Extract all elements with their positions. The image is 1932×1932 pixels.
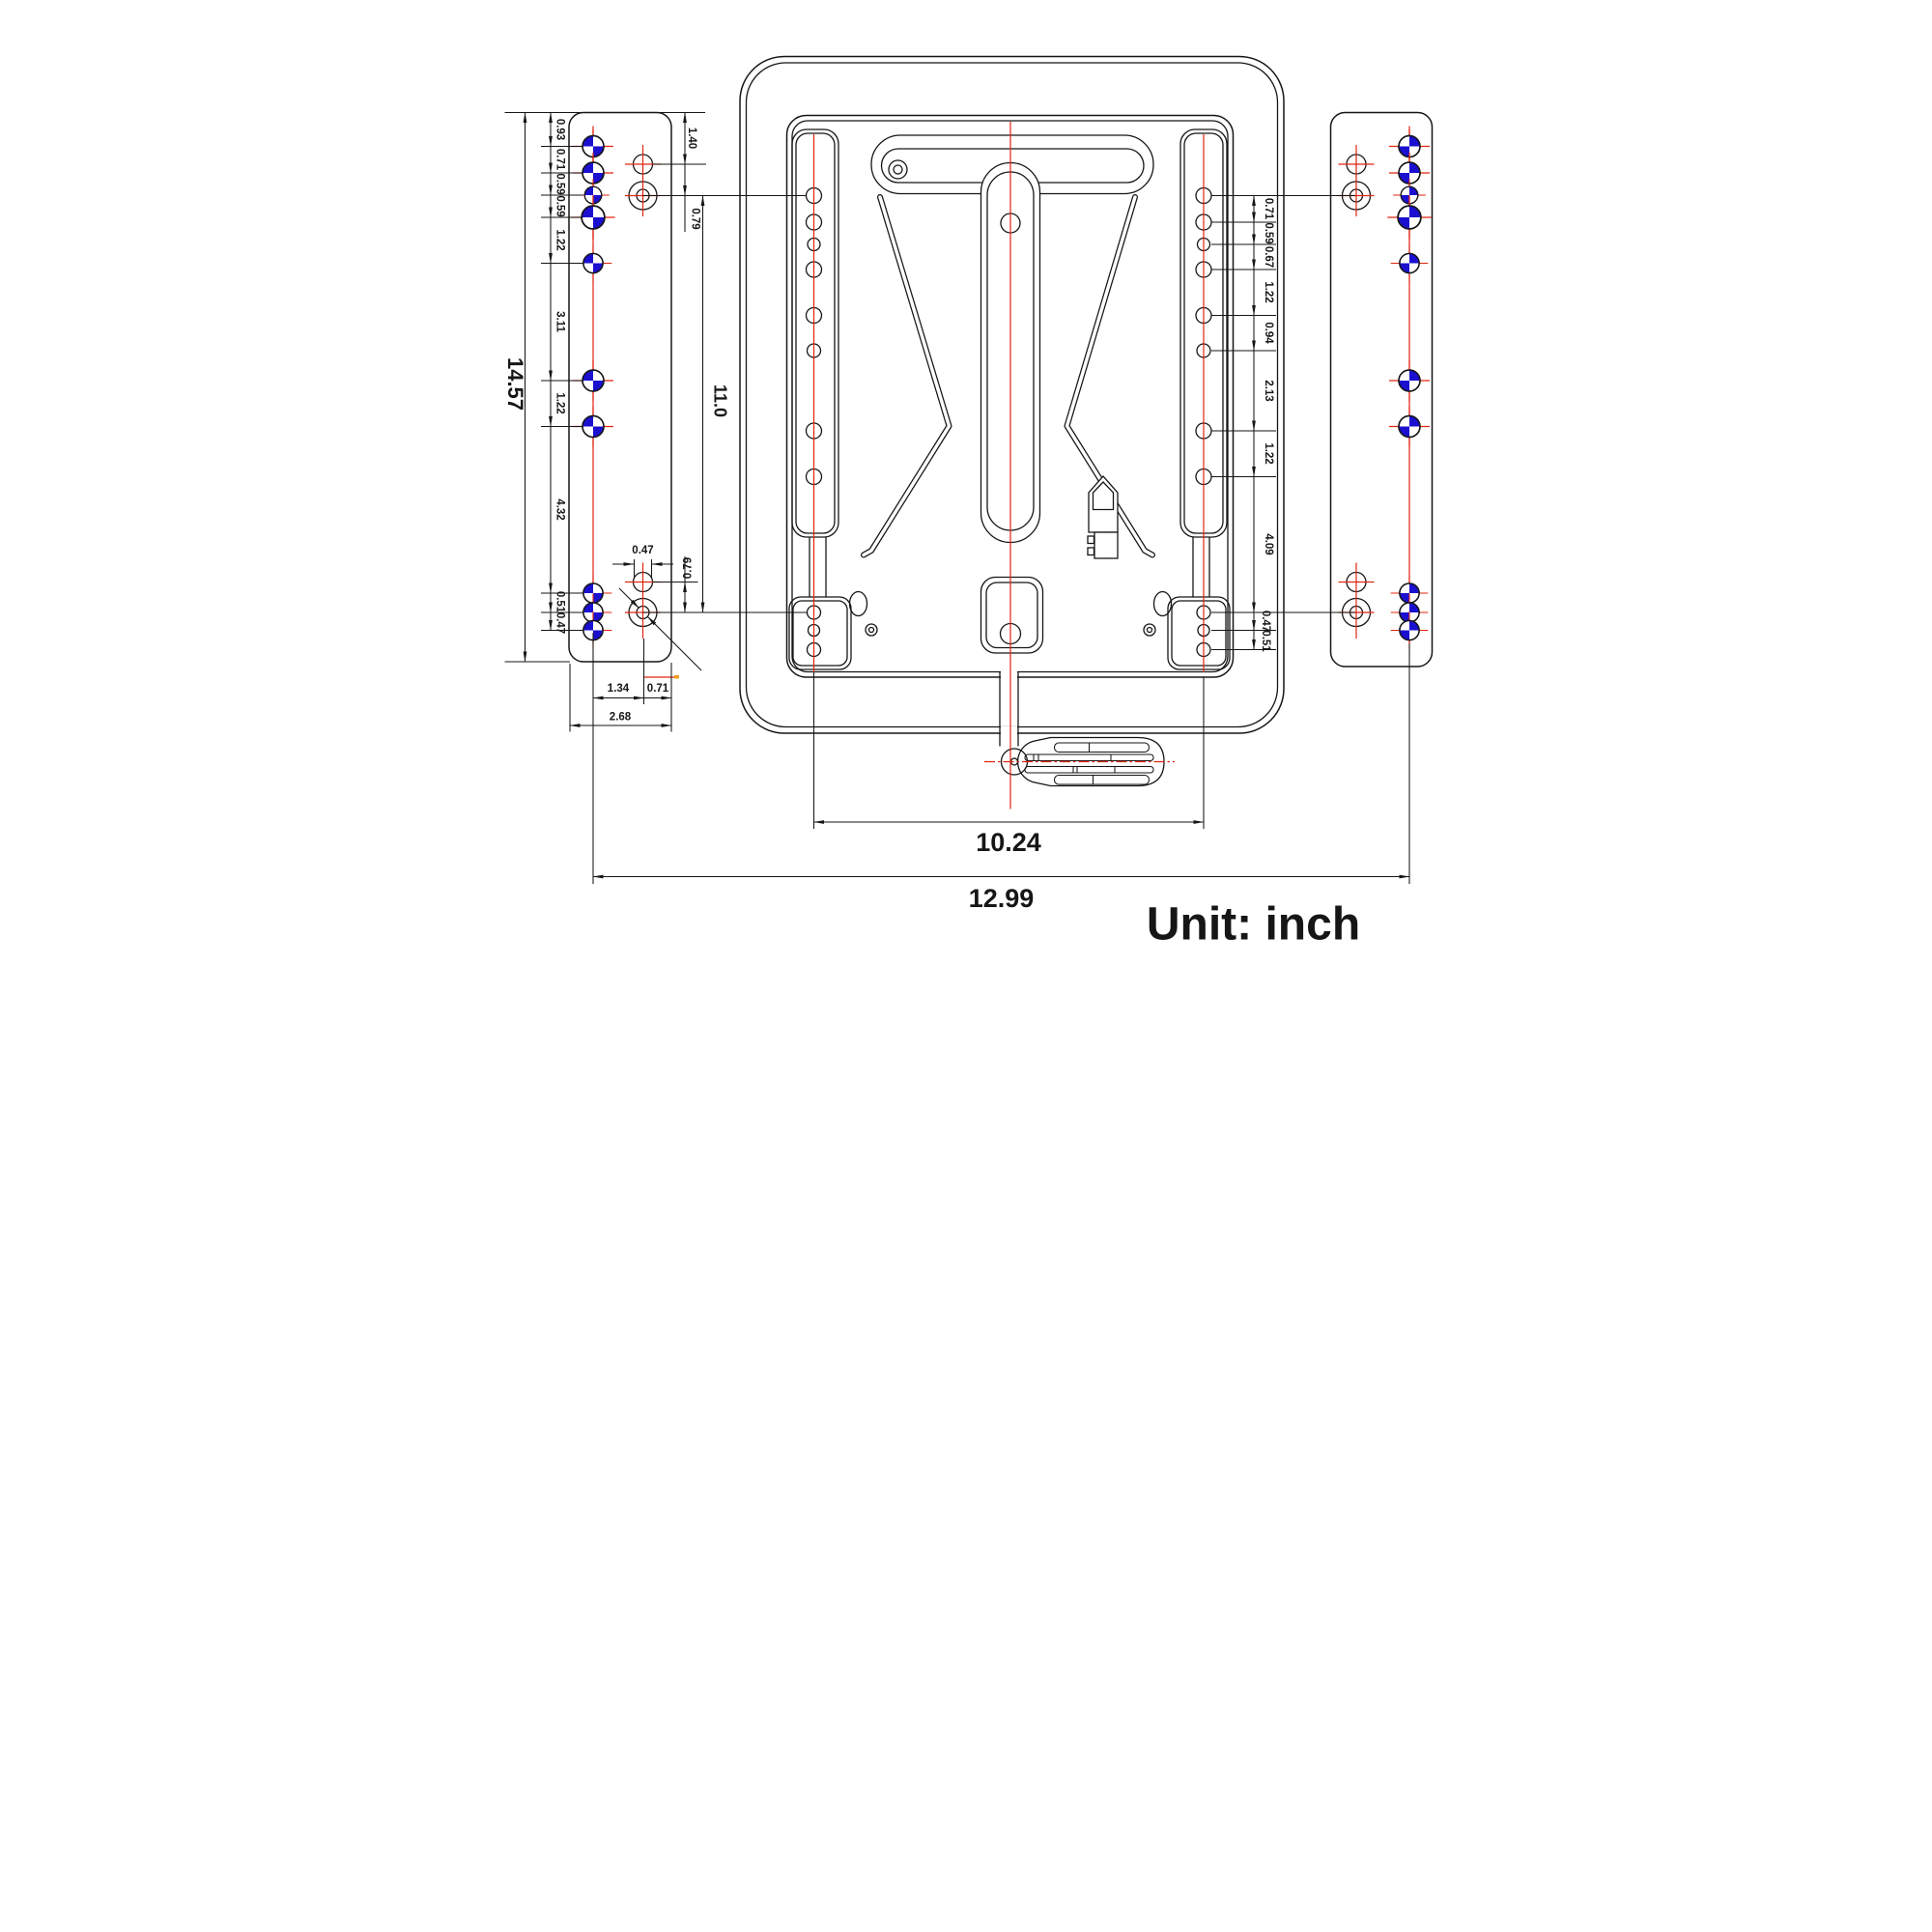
- left-mounting-plate: [569, 113, 701, 671]
- lock-pointer: [1088, 476, 1118, 558]
- unit-note: Unit: inch: [1147, 899, 1360, 951]
- dim-label: 0.94: [1263, 322, 1274, 344]
- dim-label: 1.22: [554, 229, 566, 250]
- dim-left-bottom-holes: 0.47 0.79: [612, 545, 698, 612]
- dim-label: 0.51: [1260, 630, 1271, 652]
- dim-label: 0.79: [683, 557, 695, 579]
- dim-label-overall-height: 14.57: [503, 357, 527, 411]
- dim-label-rail-span: 10.24: [976, 828, 1041, 857]
- dim-label: 0.59: [554, 195, 566, 216]
- dim-label: 0.59: [554, 173, 566, 194]
- torsion-spring-left: [864, 197, 950, 555]
- dim-label: 2.68: [610, 712, 632, 724]
- release-lever-handle: [1000, 669, 1164, 786]
- datum-target-icon: [1389, 360, 1430, 401]
- dim-label: 1.34: [608, 683, 630, 695]
- right-rail-channel: [1168, 129, 1230, 669]
- dim-label: 0.51: [554, 591, 566, 613]
- dim-left-chain: 0.93 0.71 0.59 0.59 1.22 3.11 1.22 4.32 …: [541, 113, 583, 635]
- dim-label: 0.67: [1263, 246, 1274, 268]
- dim-label: 3.11: [554, 311, 566, 332]
- drawing-canvas: 14.57 0.93 0.71 0.59 0.59 1.22 3.11 1.22…: [483, 0, 1449, 966]
- dim-label: 0.71: [647, 683, 669, 695]
- seat-base-plate: [643, 57, 1284, 810]
- datum-target-icon: [1391, 244, 1429, 282]
- technical-drawing: 14.57 0.93 0.71 0.59 0.59 1.22 3.11 1.22…: [483, 0, 1449, 966]
- dim-label: 0.71: [554, 149, 566, 171]
- dim-label: 4.09: [1263, 533, 1274, 554]
- dim-label: 0.47: [1260, 611, 1271, 632]
- slot-pivot-hole: [889, 160, 907, 179]
- dim-label: 0.93: [554, 119, 566, 140]
- dim-right-chain: 0.71 0.59 0.67 1.22 0.94 2.13 1.22 4.09 …: [1211, 196, 1276, 653]
- dim-label: 0.47: [632, 545, 653, 556]
- corner-detail-left: [850, 592, 878, 637]
- dim-label: 1.22: [554, 392, 566, 413]
- left-rail-channel: [789, 129, 851, 669]
- datum-target-icon: [1389, 407, 1430, 447]
- leader-arrow: [619, 588, 639, 609]
- bottom-guide-slot: [981, 578, 1043, 654]
- dim-label: 0.47: [554, 612, 566, 634]
- dim-label: 4.32: [554, 498, 566, 520]
- dim-label: 0.59: [1263, 222, 1274, 243]
- dim-label: 2.13: [1263, 380, 1274, 401]
- dim-label-rail-center-height: 11.0: [711, 384, 730, 417]
- highlight-tick: [674, 675, 679, 679]
- dim-label: 1.40: [686, 128, 697, 149]
- dim-rail-center-height: 11.0: [703, 196, 730, 613]
- corner-detail-right: [1144, 592, 1172, 637]
- dim-label-overall-span: 12.99: [969, 884, 1035, 913]
- dim-label: 1.22: [1263, 281, 1274, 302]
- dim-left-bottom-width: 1.34 0.71 2.68: [570, 639, 671, 732]
- dim-label: 0.79: [690, 208, 701, 229]
- dim-left-top: 1.40 0.79: [653, 113, 706, 233]
- datum-target-icon: [1387, 195, 1431, 239]
- dim-label: 0.71: [1263, 198, 1274, 220]
- dim-label: 1.22: [1263, 442, 1274, 464]
